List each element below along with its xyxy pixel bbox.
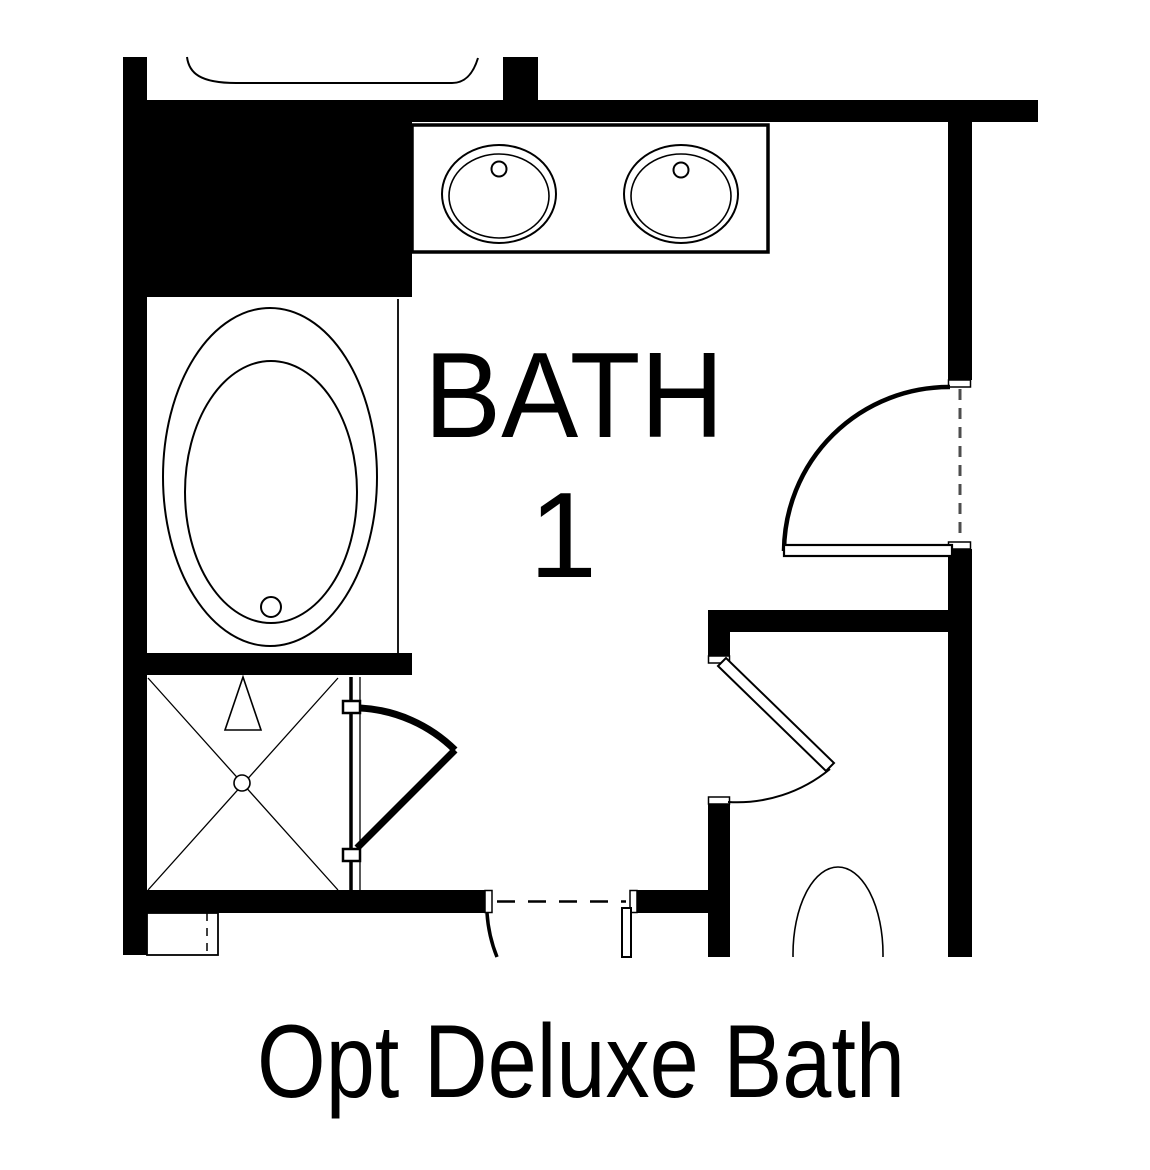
wall-left-exterior	[123, 57, 147, 955]
floor-plan-sheet: BATH 1 Opt Deluxe Bath	[0, 0, 1150, 1170]
room-label-name: BATH	[424, 327, 724, 463]
shower-door-hinge-top	[343, 701, 360, 713]
plan-caption: Opt Deluxe Bath	[257, 1004, 905, 1120]
wall-tub-deck-bottom	[145, 653, 412, 675]
wall-right-lower	[948, 549, 972, 957]
shower-door-hinge-bottom	[343, 849, 360, 861]
wall-bottom-mid	[637, 890, 708, 913]
shower-drain-icon	[234, 775, 250, 791]
room-label-number: 1	[529, 467, 597, 603]
wall-right-upper	[948, 122, 972, 380]
door-jamb	[709, 797, 730, 804]
solid-fill-chase	[145, 122, 412, 297]
wall-bottom-left	[145, 890, 485, 913]
floor-plan-drawing: BATH 1 Opt Deluxe Bath	[0, 0, 1150, 1170]
door-jamb	[485, 891, 492, 913]
door-jamb	[949, 380, 971, 387]
wall-wc-left-lower	[708, 804, 730, 957]
door-leaf	[622, 908, 631, 957]
wall-wc-left-upper-stub	[708, 632, 730, 656]
wall-top-stub	[503, 57, 538, 102]
wall-wc-top	[708, 610, 972, 632]
door-leaf	[784, 545, 952, 556]
wall-top	[147, 100, 1038, 122]
